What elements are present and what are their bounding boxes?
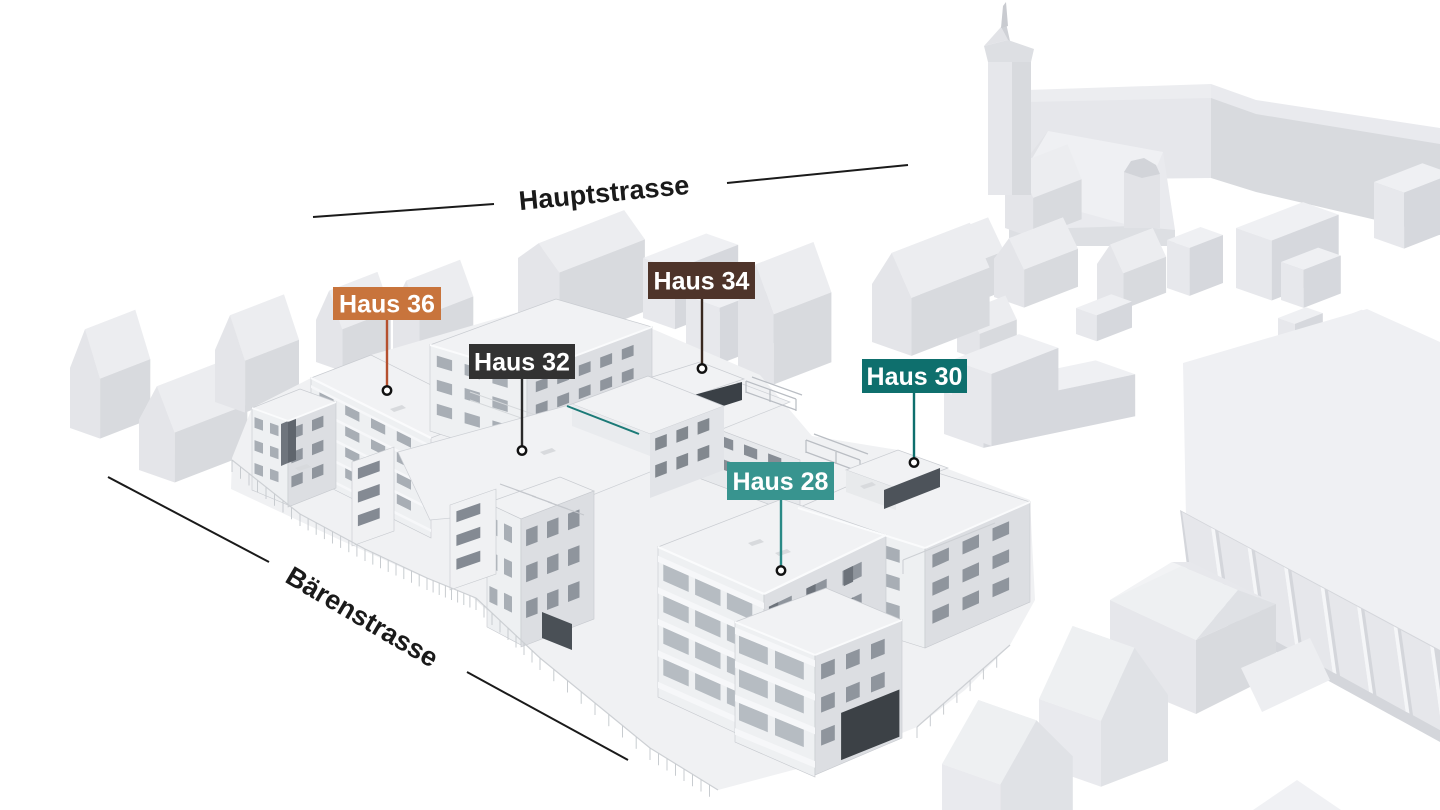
svg-text:Haus 30: Haus 30	[867, 363, 963, 391]
svg-text:Haus 36: Haus 36	[339, 291, 435, 319]
svg-text:Haus 28: Haus 28	[733, 468, 829, 496]
svg-text:Haus 34: Haus 34	[654, 268, 750, 296]
svg-text:Haus 32: Haus 32	[474, 349, 570, 377]
